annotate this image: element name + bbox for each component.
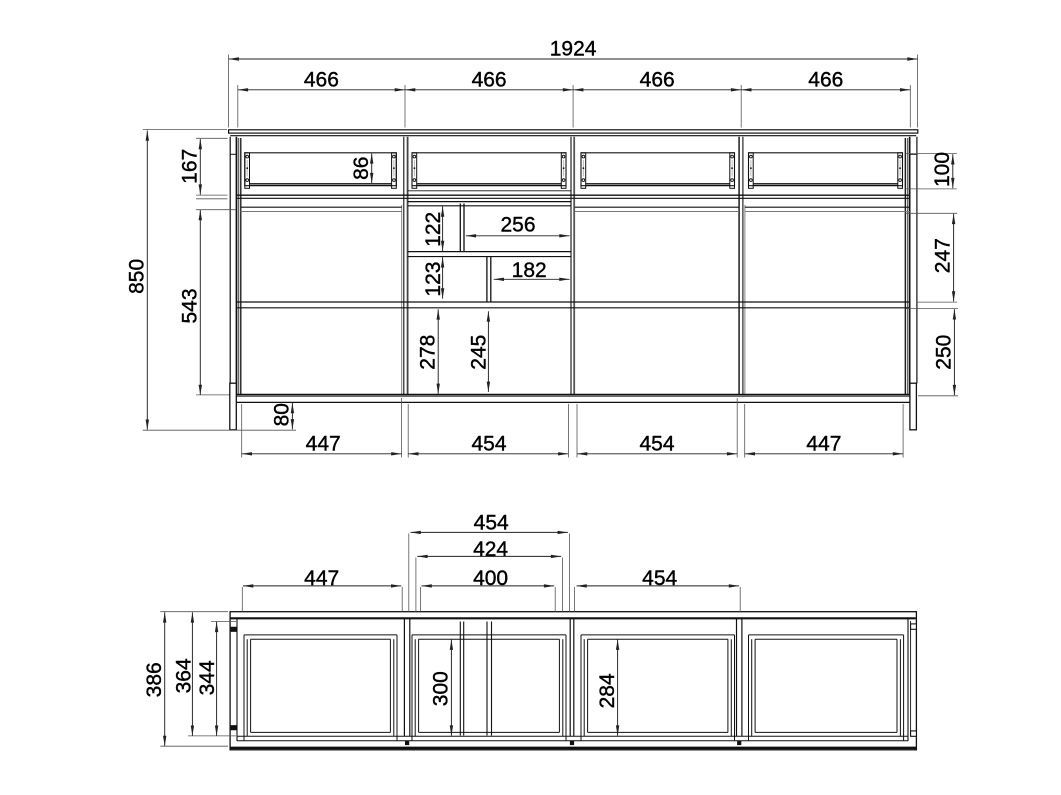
- svg-text:1924: 1924: [550, 37, 597, 60]
- svg-text:182: 182: [512, 259, 547, 282]
- svg-text:447: 447: [806, 432, 841, 455]
- svg-text:466: 466: [808, 68, 843, 91]
- svg-text:454: 454: [642, 567, 677, 590]
- svg-text:300: 300: [430, 671, 453, 706]
- svg-text:247: 247: [932, 238, 955, 273]
- svg-text:454: 454: [474, 511, 509, 534]
- svg-text:466: 466: [640, 68, 675, 91]
- svg-text:123: 123: [422, 262, 445, 297]
- svg-text:256: 256: [500, 214, 535, 237]
- svg-text:122: 122: [422, 212, 445, 247]
- svg-text:86: 86: [350, 157, 373, 180]
- svg-text:400: 400: [473, 567, 508, 590]
- svg-text:167: 167: [179, 149, 202, 184]
- svg-text:850: 850: [126, 259, 149, 294]
- svg-text:284: 284: [596, 673, 619, 708]
- svg-text:454: 454: [639, 432, 674, 455]
- svg-text:344: 344: [196, 660, 219, 695]
- svg-text:447: 447: [304, 567, 339, 590]
- svg-text:80: 80: [271, 403, 294, 426]
- svg-text:364: 364: [173, 658, 196, 693]
- svg-text:278: 278: [416, 335, 439, 370]
- svg-text:245: 245: [467, 335, 490, 370]
- svg-text:466: 466: [472, 68, 507, 91]
- svg-text:454: 454: [471, 432, 506, 455]
- svg-text:100: 100: [931, 152, 954, 187]
- svg-text:424: 424: [473, 538, 508, 561]
- svg-text:386: 386: [143, 662, 166, 697]
- svg-text:250: 250: [932, 335, 955, 370]
- svg-text:466: 466: [304, 68, 339, 91]
- svg-text:543: 543: [179, 288, 202, 323]
- svg-text:447: 447: [306, 432, 341, 455]
